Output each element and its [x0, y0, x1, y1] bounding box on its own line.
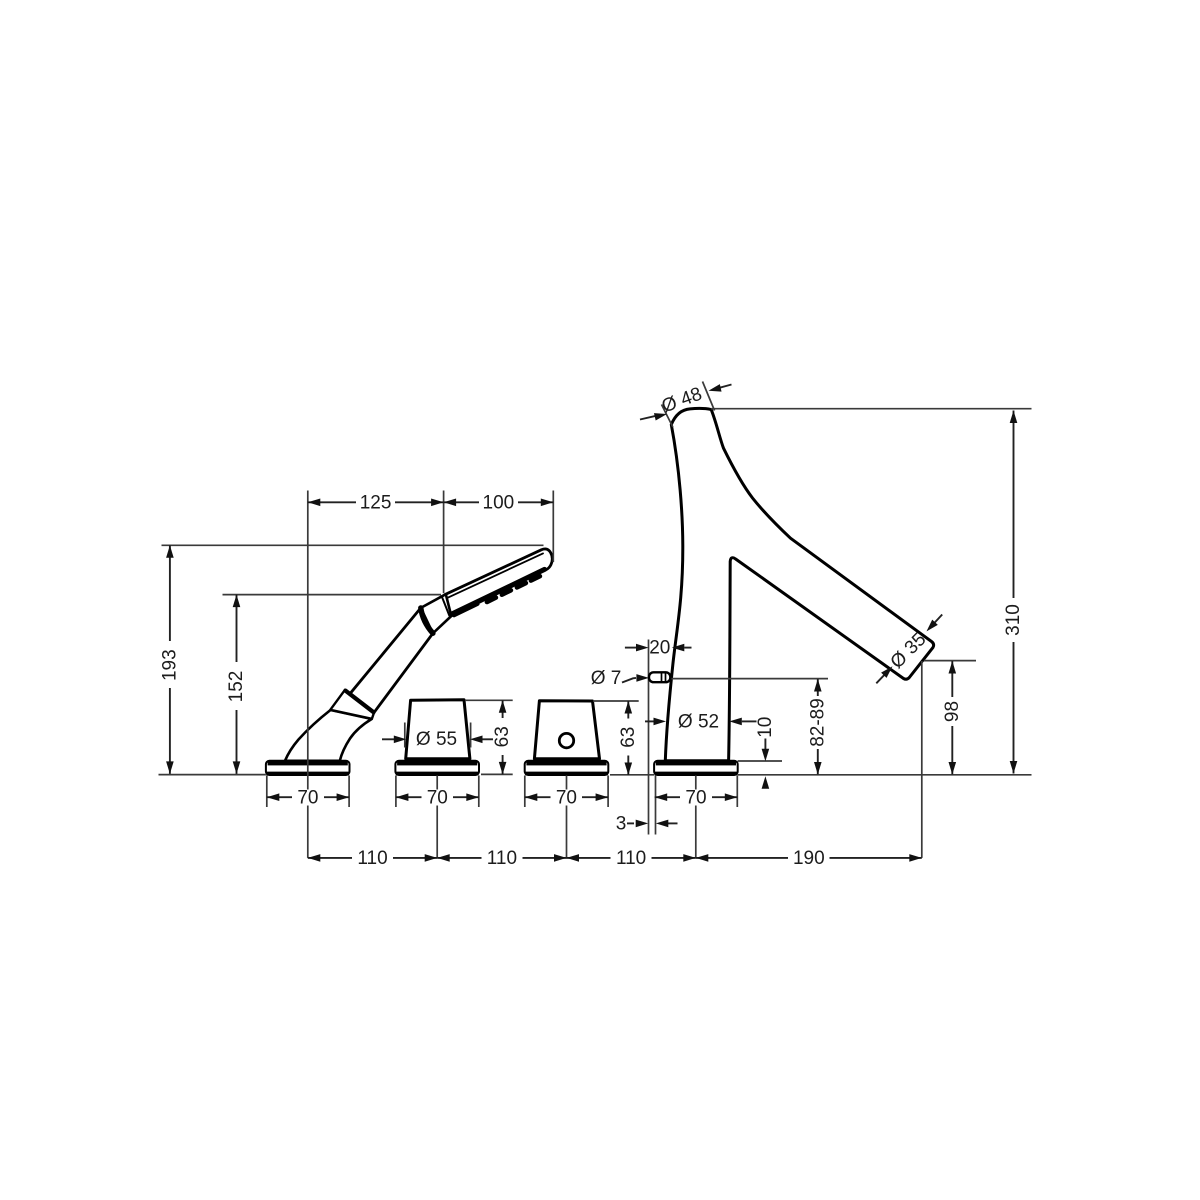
svg-text:10: 10	[755, 717, 776, 738]
svg-text:70: 70	[685, 787, 706, 808]
svg-text:63: 63	[492, 726, 513, 747]
svg-text:310: 310	[1003, 604, 1024, 636]
svg-text:82-89: 82-89	[807, 698, 828, 747]
svg-text:63: 63	[618, 727, 639, 748]
svg-text:70: 70	[556, 787, 577, 808]
svg-text:100: 100	[483, 492, 515, 513]
svg-text:190: 190	[793, 848, 825, 869]
svg-text:70: 70	[297, 787, 318, 808]
svg-text:70: 70	[427, 787, 448, 808]
svg-text:Ø 52: Ø 52	[678, 711, 719, 732]
svg-text:Ø 7: Ø 7	[591, 668, 622, 689]
svg-text:20: 20	[649, 638, 670, 659]
svg-text:110: 110	[357, 848, 387, 869]
svg-text:3: 3	[616, 813, 627, 834]
svg-text:125: 125	[360, 492, 392, 513]
svg-text:Ø 55: Ø 55	[416, 729, 457, 750]
svg-text:98: 98	[942, 701, 963, 722]
svg-text:193: 193	[159, 649, 180, 681]
svg-text:110: 110	[487, 848, 517, 869]
svg-text:152: 152	[226, 671, 247, 703]
svg-text:110: 110	[616, 848, 646, 869]
